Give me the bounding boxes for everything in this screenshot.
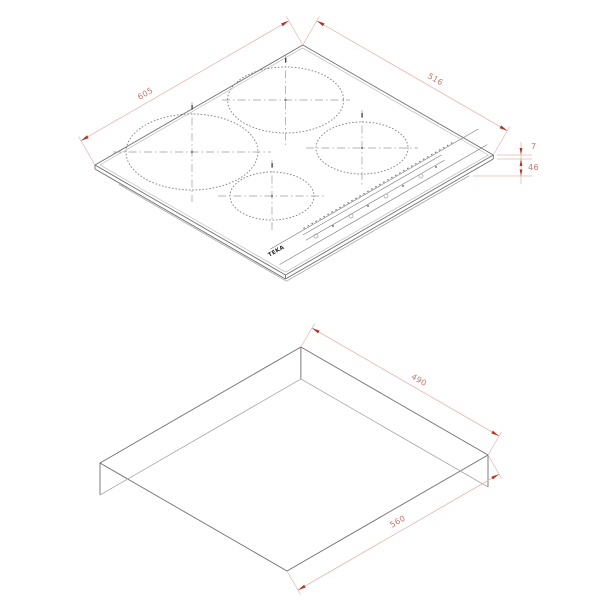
teka-logo: TEKA [267,244,285,258]
hob-isometric-view: TEKA 605 [79,16,539,281]
dimension-hob-depth: 516 [303,16,510,155]
cooking-zone-rear-center [222,55,350,145]
control-panel-strip: TEKA [267,129,487,265]
cooking-zone-front-center [218,160,326,232]
slider-track-line [306,160,445,240]
dimension-hob-width: 605 [79,16,303,165]
cutout-isometric-view: 490 560 [100,324,502,595]
slider-track-line [303,155,442,235]
cutout-opening-rim [100,347,488,571]
dimension-cutout-depth: 490 [301,324,502,455]
printed-markings-row [304,143,453,229]
hob-glass-side-faces [95,155,493,279]
dimension-hob-heights: 7 46 [473,142,539,184]
hob-body-under-glass [119,176,470,282]
drawing-canvas: TEKA 605 [0,0,600,600]
cutout-width-dimension-label: 560 [388,514,407,530]
hob-buildin-depth-label: 46 [528,163,539,172]
cooking-zone-right [306,110,418,186]
cooking-zone-left-large [113,102,271,202]
technical-drawing-page: TEKA 605 [0,0,600,600]
hob-glass-height-label: 7 [531,142,537,151]
